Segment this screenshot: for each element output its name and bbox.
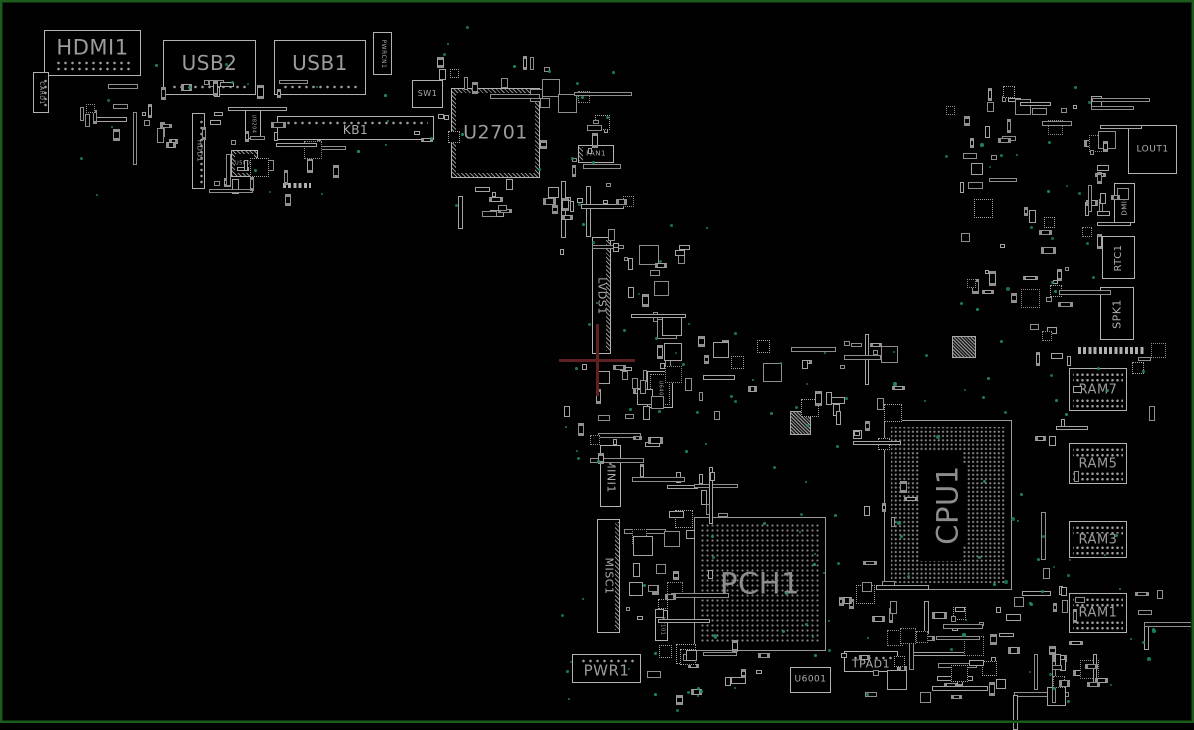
smd-part[interactable]	[892, 386, 905, 390]
smd-part[interactable]	[1036, 352, 1040, 366]
smd-part[interactable]	[664, 343, 682, 361]
smd-part[interactable]	[1073, 386, 1082, 393]
smd-part[interactable]	[876, 585, 929, 590]
smd-part[interactable]	[133, 112, 137, 165]
smd-part[interactable]	[791, 347, 836, 352]
smd-part[interactable]	[1085, 664, 1098, 669]
smd-part[interactable]	[597, 371, 610, 384]
smd-part[interactable]	[655, 609, 664, 618]
smd-part[interactable]	[1056, 426, 1088, 430]
smd-part[interactable]	[815, 391, 822, 406]
smd-part[interactable]	[1061, 587, 1067, 596]
smd-part[interactable]	[598, 415, 610, 421]
smd-part[interactable]	[148, 104, 152, 118]
smd-part[interactable]	[1144, 622, 1194, 627]
smd-part[interactable]	[626, 607, 630, 611]
smd-part[interactable]	[989, 178, 1017, 182]
smd-part[interactable]	[1052, 665, 1062, 670]
smd-part[interactable]	[967, 279, 976, 288]
smd-part[interactable]	[882, 503, 886, 512]
smd-part[interactable]	[964, 116, 970, 126]
component-HDD1[interactable]: HDD1	[192, 113, 205, 189]
smd-part[interactable]	[640, 380, 646, 394]
smd-part[interactable]	[1092, 98, 1150, 102]
smd-part[interactable]	[558, 94, 577, 113]
smd-part[interactable]	[694, 484, 738, 488]
smd-part[interactable]	[924, 601, 929, 634]
smd-part[interactable]	[703, 375, 735, 380]
smd-part[interactable]	[686, 650, 697, 661]
smd-part[interactable]	[582, 364, 587, 370]
component-LOUT1[interactable]: LOUT1	[1128, 125, 1177, 174]
smd-part[interactable]	[991, 155, 997, 160]
smd-part[interactable]	[226, 154, 231, 186]
smd-part[interactable]	[658, 619, 710, 623]
smd-part[interactable]	[985, 126, 990, 138]
smd-part[interactable]	[80, 107, 84, 121]
smd-part[interactable]	[231, 140, 236, 145]
component-PWR1[interactable]: PWR1	[572, 654, 641, 683]
boardview-canvas[interactable]: HDMI1CARD1USB2USB1PWRCN1SW1KB1U2701FAN1H…	[0, 0, 1194, 723]
smd-part[interactable]	[1046, 297, 1052, 302]
smd-part[interactable]	[900, 481, 907, 493]
smd-part[interactable]	[1091, 106, 1134, 110]
smd-part[interactable]	[1151, 343, 1166, 358]
smd-part[interactable]	[1069, 641, 1083, 645]
smd-part[interactable]	[1000, 244, 1005, 248]
smd-part[interactable]	[464, 77, 468, 90]
smd-part[interactable]	[1087, 682, 1100, 687]
smd-part[interactable]	[1051, 353, 1063, 359]
smd-part[interactable]	[271, 122, 286, 128]
smd-part[interactable]	[996, 607, 1001, 613]
smd-part[interactable]	[572, 165, 576, 177]
smd-part[interactable]	[669, 511, 684, 518]
smd-part[interactable]	[501, 78, 508, 88]
smd-part[interactable]	[971, 163, 983, 175]
smd-part[interactable]	[1138, 357, 1151, 361]
smd-part[interactable]	[458, 196, 463, 229]
smd-part[interactable]	[93, 117, 127, 122]
smd-part[interactable]	[489, 197, 503, 202]
smd-part[interactable]	[629, 582, 643, 596]
smd-part[interactable]	[999, 633, 1014, 637]
smd-part[interactable]	[543, 198, 556, 205]
smd-part[interactable]	[1020, 102, 1051, 106]
smd-part[interactable]	[665, 594, 676, 600]
smd-part[interactable]	[631, 314, 686, 318]
smd-part[interactable]	[603, 200, 608, 204]
smd-part[interactable]	[276, 143, 317, 147]
smd-part[interactable]	[624, 257, 628, 261]
smd-part[interactable]	[1097, 172, 1102, 184]
smd-part[interactable]	[590, 435, 600, 445]
component-KB1[interactable]: KB1	[277, 116, 434, 140]
smd-part[interactable]	[586, 186, 591, 237]
smd-part[interactable]	[450, 69, 459, 78]
smd-part[interactable]	[639, 245, 659, 265]
smd-part[interactable]	[1029, 210, 1036, 223]
component-CPU1[interactable]: CPU1	[884, 420, 1012, 590]
component-CARD1[interactable]: CARD1	[33, 72, 49, 113]
smd-part[interactable]	[588, 148, 592, 154]
smd-part[interactable]	[1008, 647, 1020, 654]
smd-part[interactable]	[679, 245, 690, 250]
smd-part[interactable]	[257, 85, 264, 99]
smd-part[interactable]	[741, 669, 746, 678]
smd-part[interactable]	[1035, 436, 1046, 441]
smd-part[interactable]	[625, 414, 634, 419]
smd-part[interactable]	[166, 142, 176, 148]
smd-part[interactable]	[982, 661, 997, 676]
smd-part[interactable]	[844, 341, 850, 346]
smd-part[interactable]	[1007, 119, 1011, 133]
smd-part[interactable]	[854, 431, 860, 436]
smd-part[interactable]	[651, 396, 664, 409]
component-RAM3[interactable]: RAM3	[1069, 521, 1127, 558]
smd-part[interactable]	[250, 177, 254, 191]
smd-part[interactable]	[157, 128, 164, 143]
smd-part[interactable]	[632, 378, 638, 389]
smd-part[interactable]	[633, 436, 642, 440]
smd-part[interactable]	[1042, 121, 1072, 126]
smd-part[interactable]	[963, 153, 977, 159]
smd-part[interactable]	[85, 114, 90, 127]
smd-part[interactable]	[831, 397, 845, 404]
smd-part[interactable]	[989, 271, 996, 286]
component-RTC1[interactable]: RTC1	[1102, 236, 1135, 279]
smd-part[interactable]	[758, 653, 770, 658]
smd-part[interactable]	[161, 87, 166, 100]
smd-part[interactable]	[86, 104, 95, 113]
smd-part[interactable]	[439, 69, 446, 80]
component-U2701[interactable]: U2701	[451, 88, 540, 178]
smd-part[interactable]	[210, 120, 221, 125]
smd-part[interactable]	[841, 653, 847, 658]
smd-part[interactable]	[1090, 150, 1094, 155]
smd-part[interactable]	[699, 474, 703, 484]
smd-part[interactable]	[951, 695, 962, 699]
smd-part[interactable]	[842, 597, 852, 604]
smd-part[interactable]	[1053, 603, 1057, 612]
smd-part[interactable]	[548, 187, 559, 198]
smd-part[interactable]	[955, 607, 965, 612]
smd-part[interactable]	[1011, 293, 1017, 303]
smd-part[interactable]	[989, 682, 995, 696]
smd-part[interactable]	[890, 601, 897, 614]
smd-part[interactable]	[836, 411, 841, 425]
smd-part[interactable]	[864, 506, 870, 516]
smd-part[interactable]	[540, 140, 547, 149]
smd-part[interactable]	[932, 686, 988, 691]
smd-part[interactable]	[844, 355, 881, 360]
smd-part[interactable]	[731, 677, 746, 684]
smd-part[interactable]	[1058, 302, 1073, 307]
smd-part[interactable]	[583, 164, 621, 169]
smd-part[interactable]	[284, 170, 288, 185]
smd-part[interactable]	[988, 88, 992, 101]
smd-part[interactable]	[214, 181, 220, 186]
smd-part[interactable]	[587, 125, 602, 131]
smd-part[interactable]	[1067, 356, 1071, 366]
smd-part[interactable]	[593, 120, 599, 124]
component-TPAD1[interactable]: TPAD1	[844, 651, 898, 672]
smd-part[interactable]	[1022, 591, 1051, 596]
smd-part[interactable]	[643, 406, 650, 420]
smd-part[interactable]	[472, 82, 478, 94]
smd-part[interactable]	[1021, 289, 1040, 308]
smd-part[interactable]	[960, 182, 964, 193]
smd-part[interactable]	[1044, 217, 1055, 228]
smd-part[interactable]	[676, 695, 683, 705]
smd-part[interactable]	[307, 158, 313, 173]
smd-part[interactable]	[757, 340, 770, 353]
smd-part[interactable]	[648, 437, 663, 444]
smd-part[interactable]	[920, 692, 931, 703]
smd-part[interactable]	[932, 612, 947, 619]
smd-part[interactable]	[1097, 165, 1109, 171]
smd-part[interactable]	[444, 115, 449, 120]
smd-part[interactable]	[540, 98, 550, 108]
smd-part[interactable]	[859, 655, 870, 660]
smd-part[interactable]	[204, 80, 209, 85]
smd-part[interactable]	[877, 398, 884, 410]
smd-part[interactable]	[637, 616, 643, 620]
smd-part[interactable]	[731, 356, 744, 369]
smd-part[interactable]	[1062, 600, 1068, 613]
smd-part[interactable]	[108, 84, 138, 89]
smd-part[interactable]	[1144, 624, 1149, 650]
smd-part[interactable]	[662, 316, 682, 336]
smd-part[interactable]	[802, 360, 808, 369]
smd-part[interactable]	[748, 386, 757, 392]
smd-part[interactable]	[862, 582, 872, 592]
smd-part[interactable]	[686, 530, 695, 539]
smd-part[interactable]	[946, 106, 955, 115]
smd-part[interactable]	[214, 112, 223, 116]
smd-part[interactable]	[202, 127, 206, 140]
smd-part[interactable]	[616, 199, 627, 205]
smd-part[interactable]	[414, 131, 420, 135]
smd-part[interactable]	[701, 490, 707, 505]
smd-part[interactable]	[913, 652, 967, 656]
smd-part[interactable]	[562, 198, 569, 211]
smd-part[interactable]	[865, 421, 870, 431]
smd-part[interactable]	[142, 112, 146, 116]
smd-part[interactable]	[904, 497, 918, 501]
smd-part[interactable]	[1013, 695, 1018, 730]
smd-part[interactable]	[1014, 597, 1024, 607]
component-MISC1[interactable]: MISC1	[597, 519, 620, 633]
smd-part[interactable]	[943, 624, 983, 629]
smd-part[interactable]	[628, 287, 634, 298]
smd-part[interactable]	[699, 392, 703, 401]
smd-part[interactable]	[951, 665, 968, 682]
smd-part[interactable]	[490, 94, 540, 99]
smd-part[interactable]	[647, 671, 661, 678]
smd-part[interactable]	[1032, 108, 1047, 115]
smd-part[interactable]	[642, 294, 649, 307]
smd-part[interactable]	[1097, 211, 1110, 216]
smd-part[interactable]	[606, 183, 611, 187]
smd-part[interactable]	[285, 194, 291, 206]
smd-part[interactable]	[673, 571, 679, 580]
smd-part[interactable]	[884, 404, 902, 422]
smd-part[interactable]	[1043, 568, 1050, 579]
smd-part[interactable]	[1100, 193, 1106, 204]
smd-part[interactable]	[1073, 609, 1077, 623]
smd-part[interactable]	[578, 423, 584, 436]
smd-part[interactable]	[714, 411, 720, 420]
smd-part[interactable]	[1042, 331, 1052, 341]
smd-part[interactable]	[1006, 614, 1021, 621]
smd-part[interactable]	[250, 136, 265, 140]
smd-part[interactable]	[622, 371, 628, 380]
smd-part[interactable]	[1024, 207, 1028, 216]
smd-part[interactable]	[969, 660, 984, 666]
smd-part[interactable]	[628, 258, 633, 270]
smd-part[interactable]	[1034, 654, 1038, 690]
smd-part[interactable]	[998, 138, 1011, 143]
smd-part[interactable]	[613, 439, 617, 445]
smd-part[interactable]	[1082, 227, 1092, 237]
smd-part[interactable]	[475, 187, 490, 192]
smd-part[interactable]	[113, 104, 128, 109]
smd-part[interactable]	[633, 563, 640, 577]
smd-part[interactable]	[951, 616, 956, 622]
smd-part[interactable]	[1030, 324, 1039, 330]
smd-part[interactable]	[685, 378, 692, 391]
smd-part[interactable]	[1047, 687, 1066, 706]
smd-part[interactable]	[1049, 436, 1056, 446]
smd-part[interactable]	[916, 631, 928, 643]
smd-part[interactable]	[560, 249, 564, 255]
smd-part[interactable]	[698, 336, 705, 347]
smd-part[interactable]	[498, 205, 507, 211]
smd-part[interactable]	[564, 406, 570, 417]
component-U6001[interactable]: U6001	[790, 667, 831, 693]
smd-part[interactable]	[974, 199, 993, 218]
smd-part[interactable]	[1111, 195, 1120, 200]
smd-part[interactable]	[448, 131, 460, 143]
smd-part[interactable]	[657, 345, 663, 359]
smd-part[interactable]	[228, 107, 287, 111]
smd-part[interactable]	[703, 652, 737, 656]
smd-part[interactable]	[873, 670, 879, 676]
smd-part[interactable]	[887, 670, 907, 690]
smd-part[interactable]	[664, 531, 680, 547]
smd-part[interactable]	[1100, 125, 1142, 129]
smd-part[interactable]	[632, 477, 685, 482]
smd-part[interactable]	[1088, 185, 1092, 212]
smd-part[interactable]	[552, 205, 558, 214]
smd-part[interactable]	[1023, 276, 1038, 280]
smd-part[interactable]	[1097, 222, 1131, 226]
smd-part[interactable]	[1074, 471, 1079, 482]
smd-part[interactable]	[853, 441, 901, 445]
smd-part[interactable]	[113, 129, 120, 141]
smd-part[interactable]	[213, 81, 218, 96]
smd-part[interactable]	[671, 593, 729, 598]
smd-part[interactable]	[654, 281, 669, 296]
smd-part[interactable]	[936, 636, 980, 640]
smd-part[interactable]	[209, 189, 253, 193]
component-PCH1[interactable]: PCH1	[694, 517, 826, 651]
smd-part[interactable]	[613, 243, 619, 248]
smd-part[interactable]	[245, 131, 249, 142]
smd-part[interactable]	[970, 138, 974, 148]
smd-part[interactable]	[655, 263, 667, 268]
smd-part[interactable]	[530, 57, 534, 70]
smd-part[interactable]	[570, 201, 574, 212]
smd-part[interactable]	[506, 179, 513, 190]
smd-part[interactable]	[633, 536, 653, 556]
smd-part[interactable]	[840, 365, 845, 369]
smd-part[interactable]	[996, 679, 1006, 689]
component-HDMI1[interactable]: HDMI1	[44, 30, 141, 76]
smd-part[interactable]	[1103, 141, 1108, 152]
smd-part[interactable]	[592, 133, 598, 148]
smd-part[interactable]	[1059, 290, 1111, 295]
smd-part[interactable]	[708, 570, 713, 579]
smd-part[interactable]	[650, 270, 660, 276]
smd-part[interactable]	[592, 245, 624, 249]
smd-part[interactable]	[863, 561, 877, 565]
smd-part[interactable]	[250, 158, 269, 177]
smd-part[interactable]	[656, 564, 666, 574]
smd-part[interactable]	[437, 57, 444, 68]
smd-part[interactable]	[763, 363, 782, 382]
smd-part[interactable]	[1149, 406, 1155, 421]
smd-part[interactable]	[1135, 592, 1149, 596]
smd-part[interactable]	[873, 350, 878, 355]
smd-part[interactable]	[968, 182, 983, 189]
smd-part[interactable]	[658, 599, 668, 609]
smd-part[interactable]	[608, 229, 615, 241]
smd-part[interactable]	[1138, 610, 1152, 615]
smd-part[interactable]	[718, 513, 728, 517]
smd-part[interactable]	[1065, 267, 1069, 271]
smd-part[interactable]	[894, 656, 905, 667]
smd-part[interactable]	[277, 89, 281, 98]
smd-part[interactable]	[1073, 105, 1077, 109]
smd-part[interactable]	[704, 355, 709, 364]
smd-part[interactable]	[648, 585, 658, 592]
smd-part[interactable]	[713, 342, 729, 358]
smd-part[interactable]	[1041, 247, 1056, 254]
smd-part[interactable]	[990, 634, 997, 645]
smd-part[interactable]	[1039, 230, 1052, 235]
smd-part[interactable]	[613, 365, 626, 370]
smd-part[interactable]	[665, 366, 682, 383]
smd-part[interactable]	[706, 504, 710, 515]
smd-part[interactable]	[900, 628, 916, 644]
smd-part[interactable]	[279, 80, 308, 84]
smd-part[interactable]	[1003, 86, 1015, 98]
smd-part[interactable]	[881, 346, 898, 363]
smd-part[interactable]	[482, 211, 497, 217]
smd-part[interactable]	[244, 160, 248, 171]
smd-part[interactable]	[675, 250, 685, 256]
smd-part[interactable]	[1097, 234, 1102, 249]
smd-part[interactable]	[891, 517, 895, 527]
smd-part[interactable]	[1157, 590, 1163, 599]
smd-part[interactable]	[333, 165, 339, 178]
smd-part[interactable]	[961, 233, 970, 242]
smd-part[interactable]	[1075, 597, 1085, 603]
component-PWRCN1[interactable]: PWRCN1	[373, 32, 392, 75]
component-USB1[interactable]: USB1	[274, 40, 366, 95]
